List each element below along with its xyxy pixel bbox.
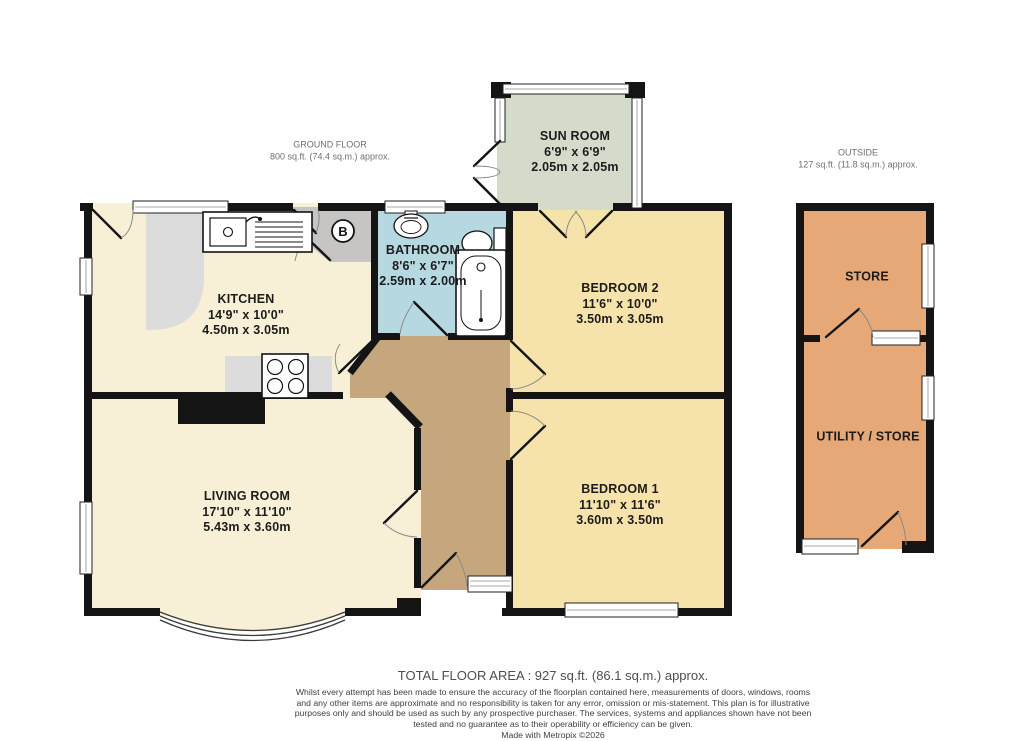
ground-floor-area: 800 sq.ft. (74.4 sq.m.) approx. xyxy=(270,151,390,163)
ground-floor-label: GROUND FLOOR 800 sq.ft. (74.4 sq.m.) app… xyxy=(270,140,390,163)
footer: TOTAL FLOOR AREA : 927 sq.ft. (86.1 sq.m… xyxy=(293,668,813,741)
bathroom-name: BATHROOM xyxy=(379,243,466,259)
total-floor-area: TOTAL FLOOR AREA : 927 sq.ft. (86.1 sq.m… xyxy=(293,668,813,683)
front-door-step xyxy=(468,576,512,592)
utility-floor xyxy=(800,342,930,549)
boiler-symbol: B xyxy=(338,224,347,239)
bedroom2-name: BEDROOM 2 xyxy=(576,281,663,297)
bedroom2-imperial: 11'6" x 10'0" xyxy=(576,296,663,312)
kitchen-imperial: 14'9" x 10'0" xyxy=(202,307,289,323)
sun-room-imperial: 6'9" x 6'9" xyxy=(531,144,618,160)
boiler: B xyxy=(332,220,354,242)
chimney-breast xyxy=(178,392,265,424)
sun-room-side-door-upper xyxy=(474,141,500,166)
kitchen-metric: 4.50m x 3.05m xyxy=(202,323,289,339)
living-room-metric: 5.43m x 3.60m xyxy=(202,520,292,536)
bathroom-metric: 2.59m x 2.00m xyxy=(379,274,466,290)
kitchen-hob xyxy=(262,354,308,398)
porch-corner-post xyxy=(397,598,421,616)
utility-window xyxy=(802,539,858,554)
room-label-bedroom2: BEDROOM 2 11'6" x 10'0" 3.50m x 3.05m xyxy=(576,281,663,328)
room-label-utility: UTILITY / STORE xyxy=(816,429,919,445)
bedroom2-metric: 3.50m x 3.05m xyxy=(576,312,663,328)
sun-room-side-door-lower xyxy=(474,178,500,204)
room-label-living-room: LIVING ROOM 17'10" x 11'10" 5.43m x 3.60… xyxy=(202,489,292,536)
outside-label: OUTSIDE 127 sq.ft. (11.8 sq.m.) approx. xyxy=(798,148,917,171)
bay-window-floor xyxy=(160,608,345,632)
disclaimer-text: Whilst every attempt has been made to en… xyxy=(293,687,813,729)
ground-floor-title: GROUND FLOOR xyxy=(270,140,390,152)
room-label-store: STORE xyxy=(845,269,889,285)
utility-name: UTILITY / STORE xyxy=(816,429,919,445)
kitchen-name: KITCHEN xyxy=(202,292,289,308)
bedroom1-name: BEDROOM 1 xyxy=(576,482,663,498)
room-label-sun-room: SUN ROOM 6'9" x 6'9" 2.05m x 2.05m xyxy=(531,129,618,176)
bathroom-imperial: 8'6" x 6'7" xyxy=(379,258,466,274)
store-name: STORE xyxy=(845,269,889,285)
bedroom1-metric: 3.60m x 3.50m xyxy=(576,513,663,529)
room-label-bedroom1: BEDROOM 1 11'10" x 11'6" 3.60m x 3.50m xyxy=(576,482,663,529)
floorplan-drawing: B xyxy=(0,0,1024,741)
room-label-bathroom: BATHROOM 8'6" x 6'7" 2.59m x 2.00m xyxy=(379,243,466,290)
living-room-imperial: 17'10" x 11'10" xyxy=(202,504,292,520)
room-label-kitchen: KITCHEN 14'9" x 10'0" 4.50m x 3.05m xyxy=(202,292,289,339)
living-room-name: LIVING ROOM xyxy=(202,489,292,505)
sun-room-metric: 2.05m x 2.05m xyxy=(531,160,618,176)
kitchen-sink xyxy=(203,212,312,252)
bedroom1-imperial: 11'10" x 11'6" xyxy=(576,497,663,513)
credit-text: Made with Metropix ©2026 xyxy=(293,730,813,741)
sun-room-name: SUN ROOM xyxy=(531,129,618,145)
outside-area: 127 sq.ft. (11.8 sq.m.) approx. xyxy=(798,159,917,171)
floorplan-page: B GROUND FLO xyxy=(0,0,1024,741)
outside-title: OUTSIDE xyxy=(798,148,917,160)
